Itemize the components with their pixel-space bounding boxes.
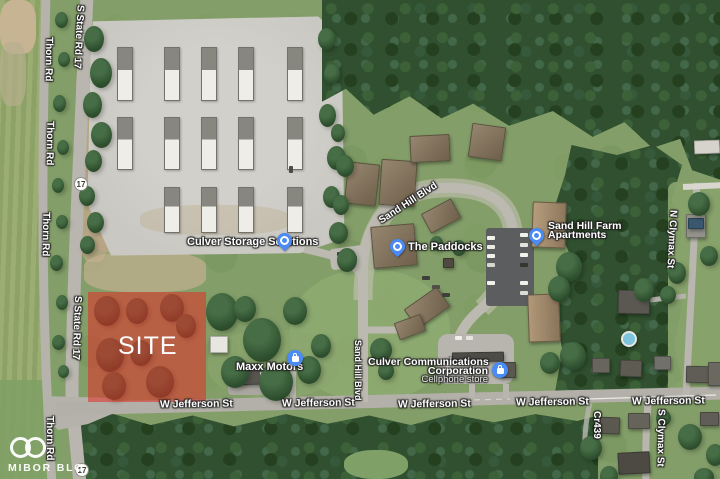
parked-car	[487, 245, 495, 249]
parked-car	[487, 236, 495, 240]
tree	[706, 444, 720, 466]
tree	[331, 124, 345, 142]
storage-building	[238, 47, 254, 101]
route-17-shield: 17	[74, 177, 88, 191]
tree	[57, 140, 69, 155]
tree	[87, 212, 104, 233]
tree	[548, 276, 570, 302]
poi-label-subtitle: Cellphone store	[421, 374, 488, 385]
parked-car	[487, 281, 495, 285]
parked-car	[466, 336, 473, 340]
tree	[52, 178, 64, 193]
parked-car	[422, 276, 430, 280]
watermark-text: MIBOR BLC	[8, 462, 84, 474]
tree	[336, 155, 354, 177]
tree	[243, 318, 281, 362]
house-roof	[617, 451, 650, 475]
parked-car	[487, 263, 495, 267]
tree	[337, 248, 357, 272]
parked-car	[520, 263, 528, 267]
poi-label-sand-hill-farm: Sand Hill Farm Apartments	[548, 222, 622, 240]
street-label-w-jefferson: W Jefferson St	[398, 398, 471, 410]
townhouse-roof	[468, 123, 506, 161]
tree	[84, 26, 104, 52]
tree	[91, 122, 112, 148]
tree	[53, 95, 66, 112]
house-roof	[700, 412, 719, 426]
storage-building	[201, 187, 217, 233]
storage-building	[164, 117, 180, 170]
street-label-w-jefferson: W Jefferson St	[632, 395, 705, 407]
townhouse-roof	[421, 198, 461, 233]
tree	[90, 58, 112, 88]
house-roof	[443, 258, 454, 268]
storage-building	[117, 47, 133, 101]
parked-car	[455, 336, 462, 340]
road-label-cr439: Cr439	[591, 411, 602, 439]
house-roof	[688, 218, 704, 229]
parked-car	[520, 291, 528, 295]
site-highlight-overlay: SITE	[88, 292, 206, 402]
tree	[50, 255, 63, 271]
tree	[600, 466, 618, 479]
house-roof	[620, 360, 643, 378]
road-label-thorn-rd: Thorn Rd	[40, 212, 52, 257]
storage-building	[287, 47, 303, 101]
storage-building	[117, 117, 133, 170]
site-label: SITE	[118, 332, 178, 361]
tree	[688, 192, 710, 216]
tree	[52, 335, 65, 350]
townhouse-roof	[394, 314, 426, 340]
tree	[206, 293, 238, 331]
shopping-pin-maxx-motors[interactable]	[287, 350, 303, 366]
tree	[560, 342, 586, 370]
tree	[56, 215, 68, 229]
tree	[634, 278, 654, 302]
tree	[700, 246, 718, 266]
satellite-map[interactable]: SITE 17 17 S State Rd 17 Thorn Rd Thorn …	[0, 0, 720, 479]
poi-label-culver-communications: Culver Communications Corporation Cellph…	[368, 358, 488, 385]
storage-building	[201, 47, 217, 101]
road-label-sand-hill-blvd: Sand Hill Blvd	[353, 340, 363, 401]
house-roof	[708, 362, 720, 386]
parked-car	[442, 293, 450, 297]
tree	[80, 236, 95, 254]
tree	[311, 334, 331, 358]
road-label-thorn-rd: Thorn Rd	[44, 121, 56, 166]
parked-car	[520, 233, 528, 237]
tree	[694, 468, 714, 479]
house-roof	[592, 358, 610, 373]
tree	[540, 352, 560, 374]
tree	[83, 92, 102, 118]
tree	[55, 12, 68, 28]
parked-car	[520, 243, 528, 247]
parked-car	[520, 281, 528, 285]
storage-building	[164, 187, 180, 233]
tree	[85, 150, 102, 172]
poi-label-culver-storage: Culver Storage Solutions	[187, 236, 318, 248]
tree	[678, 424, 702, 450]
parked-car	[289, 166, 293, 173]
tree	[58, 365, 69, 378]
tree	[283, 297, 307, 325]
house-roof	[694, 140, 720, 155]
road-label-s-state-rd-17: S State Rd 17	[70, 296, 83, 360]
parked-car	[487, 254, 495, 258]
poi-label-the-paddocks: The Paddocks	[408, 241, 483, 253]
shopping-pin-culver-communications[interactable]	[492, 362, 508, 378]
storage-building	[164, 47, 180, 101]
storage-building	[287, 187, 303, 233]
storage-building	[287, 117, 303, 170]
house-roof	[628, 413, 650, 429]
tree	[324, 64, 340, 84]
road-label-thorn-rd: Thorn Rd	[43, 37, 55, 82]
tree	[318, 28, 335, 50]
storage-building	[201, 117, 217, 170]
mibor-watermark: MIBOR BLC	[8, 437, 84, 474]
street-label-w-jefferson: W Jefferson St	[282, 397, 355, 409]
infinity-logo-icon	[8, 437, 48, 461]
street-label-w-jefferson: W Jefferson St	[160, 398, 233, 410]
tree	[234, 296, 256, 322]
storage-building	[238, 187, 254, 233]
house-roof	[210, 336, 228, 353]
tree	[329, 222, 348, 244]
tree	[58, 52, 70, 67]
tree	[319, 104, 336, 127]
street-label-w-jefferson: W Jefferson St	[516, 396, 589, 408]
road-label-s-clymax-st: S Clymax St	[654, 409, 666, 467]
storage-building	[238, 117, 254, 170]
swimming-pool	[621, 331, 637, 347]
parked-car	[520, 253, 528, 257]
tree	[333, 195, 349, 215]
tree	[580, 436, 602, 460]
poi-label-line2: Apartments	[548, 229, 606, 241]
house-roof	[654, 356, 671, 370]
tree	[660, 286, 676, 304]
townhouse-roof	[409, 134, 450, 163]
parked-car	[432, 285, 440, 289]
tree	[56, 295, 68, 310]
